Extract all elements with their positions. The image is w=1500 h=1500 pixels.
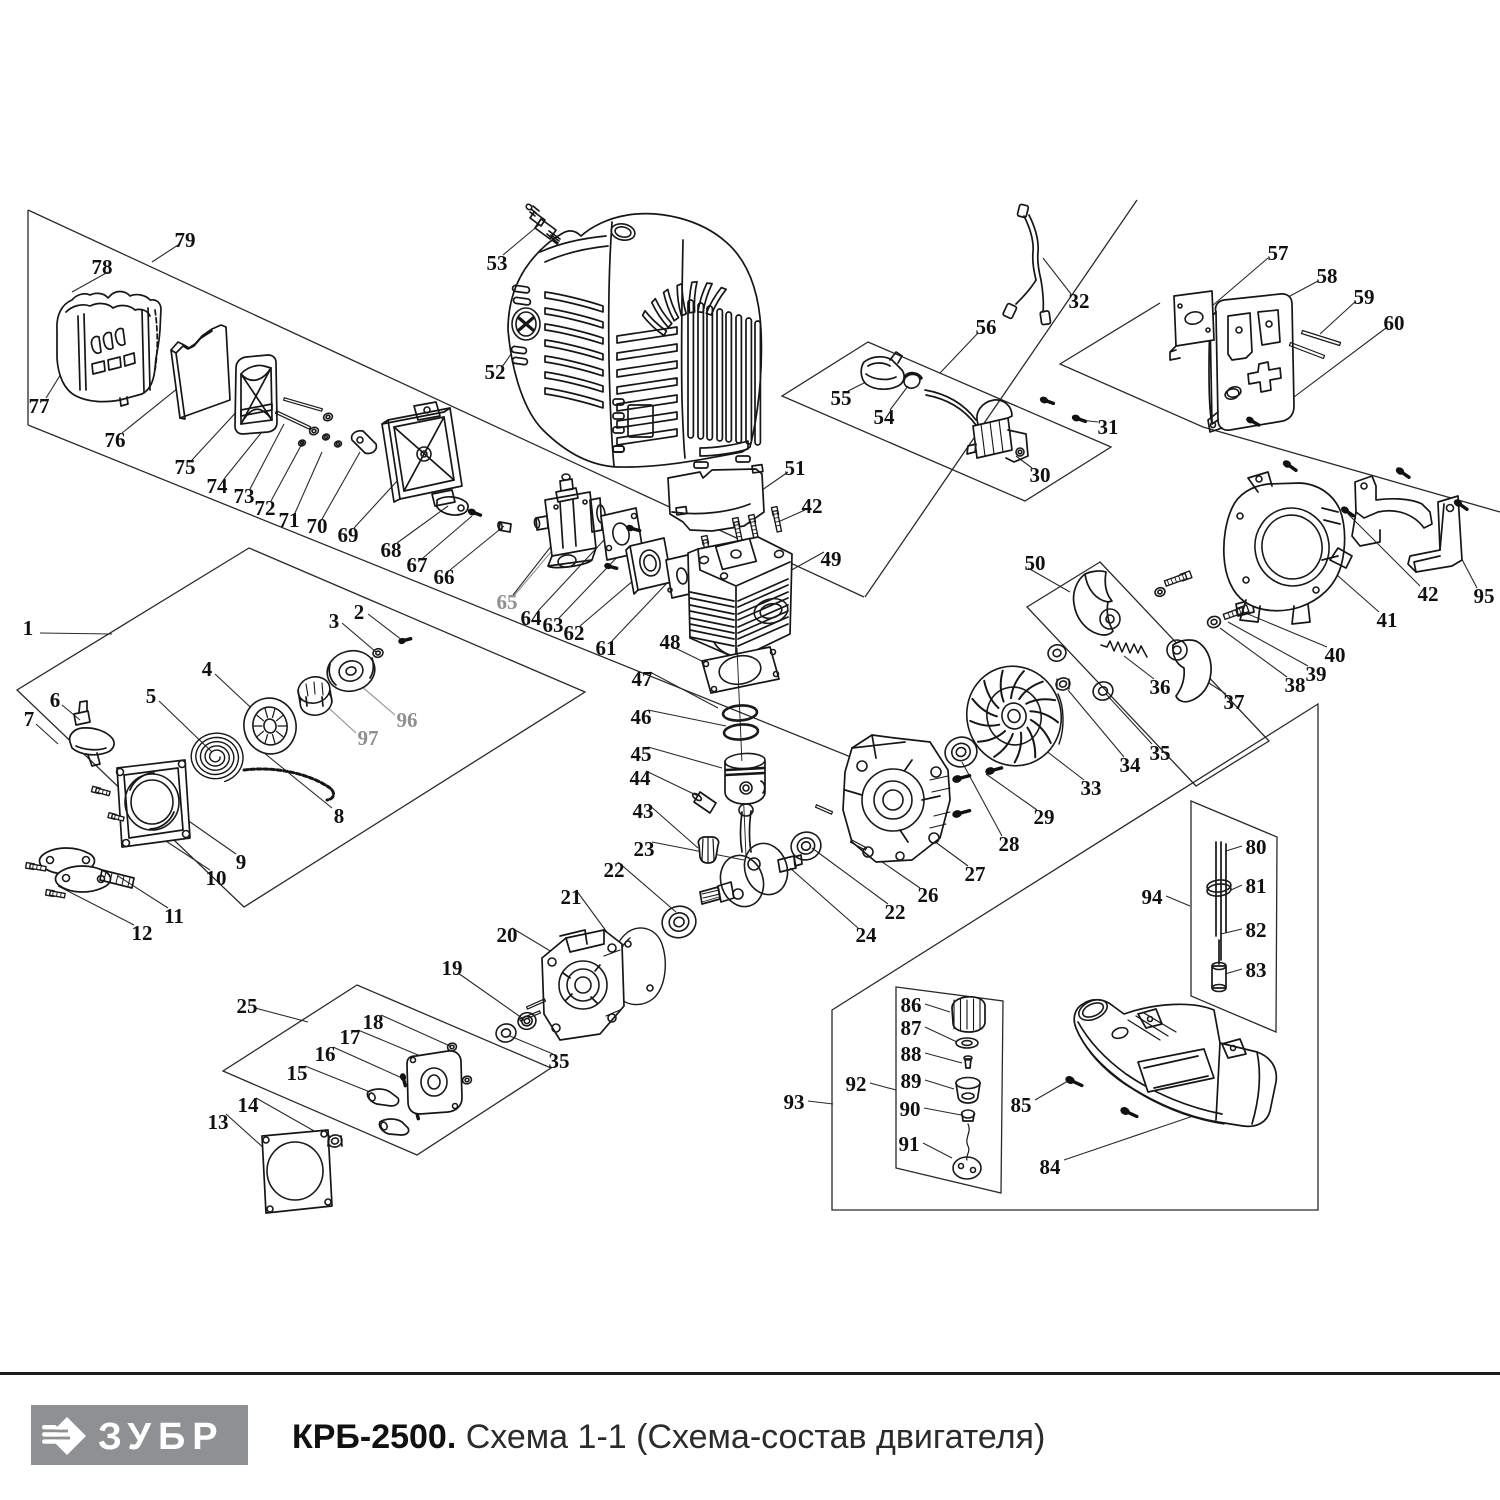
svg-text:79: 79 bbox=[175, 228, 196, 252]
svg-text:28: 28 bbox=[999, 832, 1020, 856]
svg-text:32: 32 bbox=[1069, 289, 1090, 313]
svg-text:2: 2 bbox=[354, 600, 365, 624]
svg-text:44: 44 bbox=[630, 766, 652, 790]
svg-text:17: 17 bbox=[340, 1025, 361, 1049]
svg-text:4: 4 bbox=[202, 657, 213, 681]
svg-text:41: 41 bbox=[1377, 608, 1398, 632]
svg-text:5: 5 bbox=[146, 684, 157, 708]
svg-text:97: 97 bbox=[358, 726, 379, 750]
svg-text:77: 77 bbox=[29, 394, 50, 418]
svg-text:66: 66 bbox=[434, 565, 455, 589]
svg-text:27: 27 bbox=[965, 862, 986, 886]
svg-text:10: 10 bbox=[206, 866, 227, 890]
svg-text:78: 78 bbox=[92, 255, 113, 279]
svg-text:16: 16 bbox=[315, 1042, 336, 1066]
svg-text:31: 31 bbox=[1098, 415, 1119, 439]
svg-text:84: 84 bbox=[1040, 1155, 1062, 1179]
svg-text:50: 50 bbox=[1025, 551, 1046, 575]
svg-text:73: 73 bbox=[234, 484, 255, 508]
svg-text:81: 81 bbox=[1246, 874, 1267, 898]
svg-text:7: 7 bbox=[24, 707, 35, 731]
svg-text:57: 57 bbox=[1268, 241, 1289, 265]
svg-text:51: 51 bbox=[785, 456, 806, 480]
svg-text:53: 53 bbox=[487, 251, 508, 275]
svg-text:14: 14 bbox=[238, 1093, 260, 1117]
svg-text:70: 70 bbox=[307, 514, 328, 538]
svg-text:52: 52 bbox=[485, 360, 506, 384]
svg-text:60: 60 bbox=[1384, 311, 1405, 335]
svg-text:58: 58 bbox=[1317, 264, 1338, 288]
svg-text:38: 38 bbox=[1285, 673, 1306, 697]
svg-text:76: 76 bbox=[105, 428, 126, 452]
svg-text:95: 95 bbox=[1474, 584, 1495, 608]
svg-text:90: 90 bbox=[900, 1097, 921, 1121]
svg-text:29: 29 bbox=[1034, 805, 1055, 829]
svg-text:42: 42 bbox=[1418, 582, 1439, 606]
svg-text:59: 59 bbox=[1354, 285, 1375, 309]
svg-text:12: 12 bbox=[132, 921, 153, 945]
svg-text:23: 23 bbox=[634, 837, 655, 861]
svg-text:40: 40 bbox=[1325, 643, 1346, 667]
svg-text:55: 55 bbox=[831, 386, 852, 410]
svg-text:35: 35 bbox=[1150, 741, 1171, 765]
svg-text:КРБ-2500. Схема 1-1 (Схема-сос: КРБ-2500. Схема 1-1 (Схема-состав двигат… bbox=[292, 1418, 1045, 1456]
svg-text:ЗУБР: ЗУБР bbox=[98, 1416, 225, 1458]
svg-text:26: 26 bbox=[918, 883, 939, 907]
svg-text:63: 63 bbox=[543, 613, 564, 637]
svg-text:30: 30 bbox=[1030, 463, 1051, 487]
svg-text:83: 83 bbox=[1246, 958, 1267, 982]
svg-text:67: 67 bbox=[407, 553, 428, 577]
svg-text:21: 21 bbox=[561, 885, 582, 909]
svg-text:93: 93 bbox=[784, 1090, 805, 1114]
svg-text:35: 35 bbox=[549, 1049, 570, 1073]
svg-text:36: 36 bbox=[1150, 675, 1171, 699]
svg-text:11: 11 bbox=[164, 904, 184, 928]
svg-text:19: 19 bbox=[442, 956, 463, 980]
svg-text:48: 48 bbox=[660, 630, 681, 654]
svg-text:85: 85 bbox=[1011, 1093, 1032, 1117]
svg-text:34: 34 bbox=[1120, 753, 1142, 777]
svg-text:47: 47 bbox=[632, 667, 653, 691]
svg-text:65: 65 bbox=[497, 590, 518, 614]
svg-text:75: 75 bbox=[175, 455, 196, 479]
svg-text:43: 43 bbox=[633, 799, 654, 823]
svg-text:42: 42 bbox=[802, 494, 823, 518]
svg-text:88: 88 bbox=[901, 1042, 922, 1066]
svg-text:91: 91 bbox=[899, 1132, 920, 1156]
svg-text:13: 13 bbox=[208, 1110, 229, 1134]
svg-text:89: 89 bbox=[901, 1069, 922, 1093]
svg-text:96: 96 bbox=[397, 708, 418, 732]
svg-text:82: 82 bbox=[1246, 918, 1267, 942]
svg-text:9: 9 bbox=[236, 850, 247, 874]
svg-text:69: 69 bbox=[338, 523, 359, 547]
svg-text:62: 62 bbox=[564, 621, 585, 645]
svg-text:71: 71 bbox=[279, 508, 300, 532]
svg-text:15: 15 bbox=[287, 1061, 308, 1085]
svg-text:22: 22 bbox=[885, 900, 906, 924]
svg-text:39: 39 bbox=[1306, 662, 1327, 686]
svg-text:1: 1 bbox=[23, 616, 34, 640]
svg-text:92: 92 bbox=[846, 1072, 867, 1096]
svg-text:56: 56 bbox=[976, 315, 997, 339]
svg-text:20: 20 bbox=[497, 923, 518, 947]
svg-text:45: 45 bbox=[631, 742, 652, 766]
svg-text:74: 74 bbox=[207, 474, 229, 498]
svg-text:64: 64 bbox=[521, 606, 543, 630]
svg-text:72: 72 bbox=[255, 496, 276, 520]
svg-text:24: 24 bbox=[856, 923, 878, 947]
svg-text:37: 37 bbox=[1224, 690, 1245, 714]
svg-text:8: 8 bbox=[334, 804, 345, 828]
svg-text:33: 33 bbox=[1081, 776, 1102, 800]
svg-text:18: 18 bbox=[363, 1010, 384, 1034]
svg-text:61: 61 bbox=[596, 636, 617, 660]
svg-text:94: 94 bbox=[1142, 885, 1164, 909]
svg-text:22: 22 bbox=[604, 858, 625, 882]
svg-text:49: 49 bbox=[821, 547, 842, 571]
svg-text:6: 6 bbox=[50, 688, 61, 712]
svg-text:68: 68 bbox=[381, 538, 402, 562]
svg-text:25: 25 bbox=[237, 994, 258, 1018]
svg-text:3: 3 bbox=[329, 609, 340, 633]
svg-text:54: 54 bbox=[874, 405, 896, 429]
svg-text:80: 80 bbox=[1246, 835, 1267, 859]
svg-text:87: 87 bbox=[901, 1016, 922, 1040]
svg-text:46: 46 bbox=[631, 705, 652, 729]
svg-text:86: 86 bbox=[901, 993, 922, 1017]
